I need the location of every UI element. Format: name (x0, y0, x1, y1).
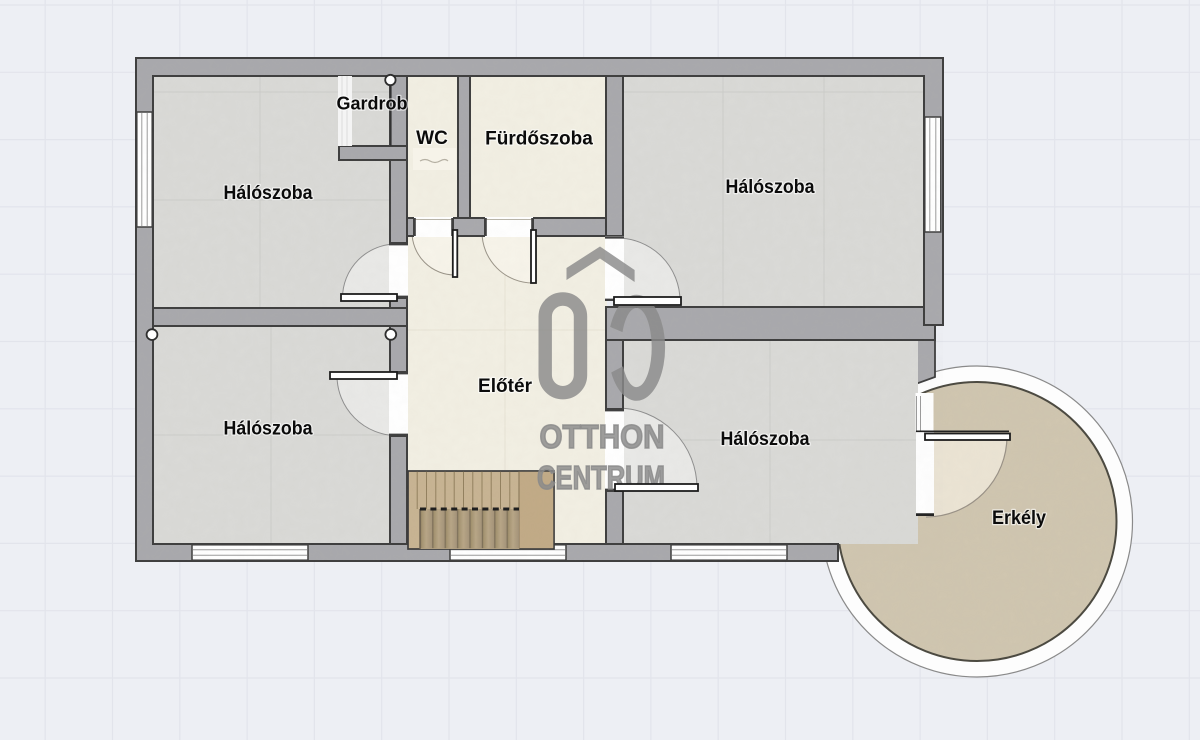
svg-text:WC: WC (416, 128, 448, 149)
svg-text:Hálószoba: Hálószoba (726, 177, 815, 198)
svg-text:Erkély: Erkély (992, 508, 1046, 529)
svg-text:Gardrob: Gardrob (336, 94, 407, 114)
svg-text:Hálószoba: Hálószoba (721, 429, 810, 450)
svg-text:Hálószoba: Hálószoba (224, 419, 313, 440)
svg-text:Előtér: Előtér (478, 376, 533, 397)
svg-text:OTTHON: OTTHON (540, 418, 665, 455)
svg-text:Fürdőszoba: Fürdőszoba (485, 129, 593, 150)
svg-text:Hálószoba: Hálószoba (224, 183, 313, 204)
